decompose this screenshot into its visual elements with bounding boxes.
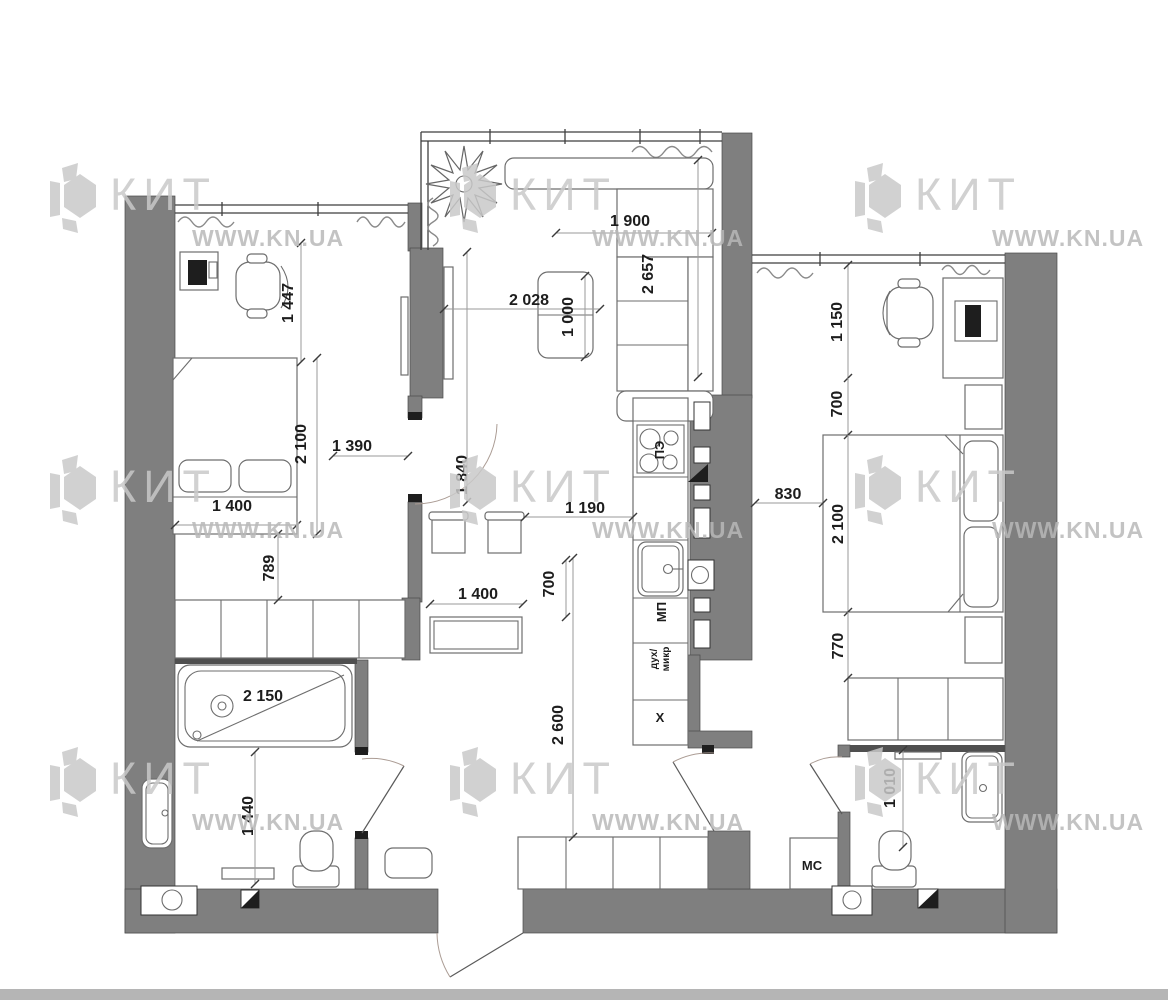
kitchen-sink [638,542,683,596]
bathroom1-shelf [222,868,274,879]
door-bathroom1 [355,747,404,839]
curtain-icon [942,266,990,275]
watermark-brand: КИТ [110,753,217,804]
hallway-wardrobe [518,837,708,889]
oven-label-line1: дух/ [649,649,660,670]
svg-text:1 400: 1 400 [212,498,252,515]
watermark: КИТ WWW.KN.UA [855,163,1144,251]
hood-label: X [656,710,665,725]
dim-bedroom2-passage: 830 [751,486,827,507]
watermark-site: WWW.KN.UA [192,809,344,835]
floor-plan: ПЭ МП дух/ микр X [0,0,1168,1000]
dining [429,512,524,653]
svg-text:1 400: 1 400 [458,586,498,603]
watermark: КИТ WWW.KN.UA [855,747,1144,835]
hallway-bench [385,848,432,878]
curtain-icon [632,147,712,158]
floor-plan-image: ПЭ МП дух/ микр X [0,0,1168,1000]
watermark-site: WWW.KN.UA [592,517,744,543]
dim-bedroom2-desk-zone: 1 150 [829,261,852,382]
bathroom1-toilet [293,831,339,887]
svg-text:2 150: 2 150 [243,688,283,705]
watermark-brand: КИТ [915,169,1022,220]
watermark-site: WWW.KN.UA [592,225,744,251]
svg-text:789: 789 [261,555,278,582]
svg-text:1 150: 1 150 [829,302,846,342]
curtain-icon [357,217,405,227]
kit-logo-icon [50,163,96,233]
dining-chair [485,512,524,553]
bathroom1-partition [175,658,357,664]
sliding-panel [401,297,408,375]
bedroom2-chair [883,279,933,347]
washer-niche [141,886,197,915]
bedroom2-wardrobe [848,678,1003,740]
curtain-icon [757,268,813,278]
svg-text:2 100: 2 100 [293,424,310,464]
svg-text:770: 770 [830,633,847,660]
dining-chair [429,512,468,553]
pillow [239,460,291,492]
microwave-label: МП [654,602,669,622]
kit-logo-icon [50,747,96,817]
svg-text:700: 700 [829,391,846,418]
svg-text:2 600: 2 600 [550,705,567,745]
watermark: КИТ WWW.KN.UA [50,163,344,251]
oven-label-line2: микр [661,647,672,672]
bedroom2-window [752,252,1005,266]
svg-text:2 100: 2 100 [830,504,847,544]
hallway: МС [385,837,838,889]
dim-bedroom1-to-door: 1 390 [329,438,412,460]
nightstand [965,385,1002,429]
dim-bedroom2-wardrobe-side: 770 [830,612,852,682]
svg-text:1 447: 1 447 [280,283,297,323]
watermark-site: WWW.KN.UA [992,517,1144,543]
svg-text:1 000: 1 000 [560,297,577,337]
nightstand [965,617,1002,663]
kit-logo-icon [855,163,901,233]
bathroom2-toilet [872,831,916,887]
dining-table [430,617,522,653]
dim-bedroom1-window: 1 447 [280,239,305,366]
bathtub [178,665,352,747]
watermark-site: WWW.KN.UA [992,809,1144,835]
storage-closet: МС [790,838,838,889]
door-entrance [437,933,523,977]
svg-text:1 390: 1 390 [332,438,372,455]
watermark: КИТ WWW.KN.UA [50,747,344,835]
watermark-site: WWW.KN.UA [192,517,344,543]
stove-label: ПЭ [652,441,667,460]
watermark: КИТ WWW.KN.UA [450,747,744,835]
watermark-brand: КИТ [510,461,617,512]
watermark-site: WWW.KN.UA [992,225,1144,251]
watermark-brand: КИТ [110,169,217,220]
level-marker-icon [241,890,259,908]
bedroom1-wardrobe [175,600,405,658]
dim-bathtub-length: 2 150 [243,688,283,705]
watermark-brand: КИТ [110,461,217,512]
watermark-brand: КИТ [915,753,1022,804]
svg-text:2 657: 2 657 [640,254,657,294]
dim-dining-table-width: 1 400 [426,586,527,608]
watermark-site: WWW.KN.UA [592,809,744,835]
watermark-brand: КИТ [915,461,1022,512]
sliding-panel [444,267,453,379]
dim-bedroom2-gap: 700 [829,378,852,439]
kitchen: ПЭ МП дух/ микр X [633,398,714,745]
photo-edge-strip [0,989,1168,1000]
door-bathroom2 [810,757,842,814]
watermark-brand: КИТ [510,753,617,804]
washer-niche [832,886,872,915]
dim-dining-depth: 700 [541,556,570,621]
svg-text:700: 700 [541,571,558,598]
curtain-icon [428,198,438,246]
kit-logo-icon [450,747,496,817]
svg-text:830: 830 [775,486,802,503]
bedroom1-monitor-icon [188,260,207,285]
kit-logo-icon [50,455,96,525]
watermark-site: WWW.KN.UA [192,225,344,251]
watermark-brand: КИТ [510,169,617,220]
storage-label: МС [802,858,823,873]
watermark: КИТ WWW.KN.UA [50,455,344,543]
svg-text:2 028: 2 028 [509,292,549,309]
level-marker-icon [918,889,938,908]
